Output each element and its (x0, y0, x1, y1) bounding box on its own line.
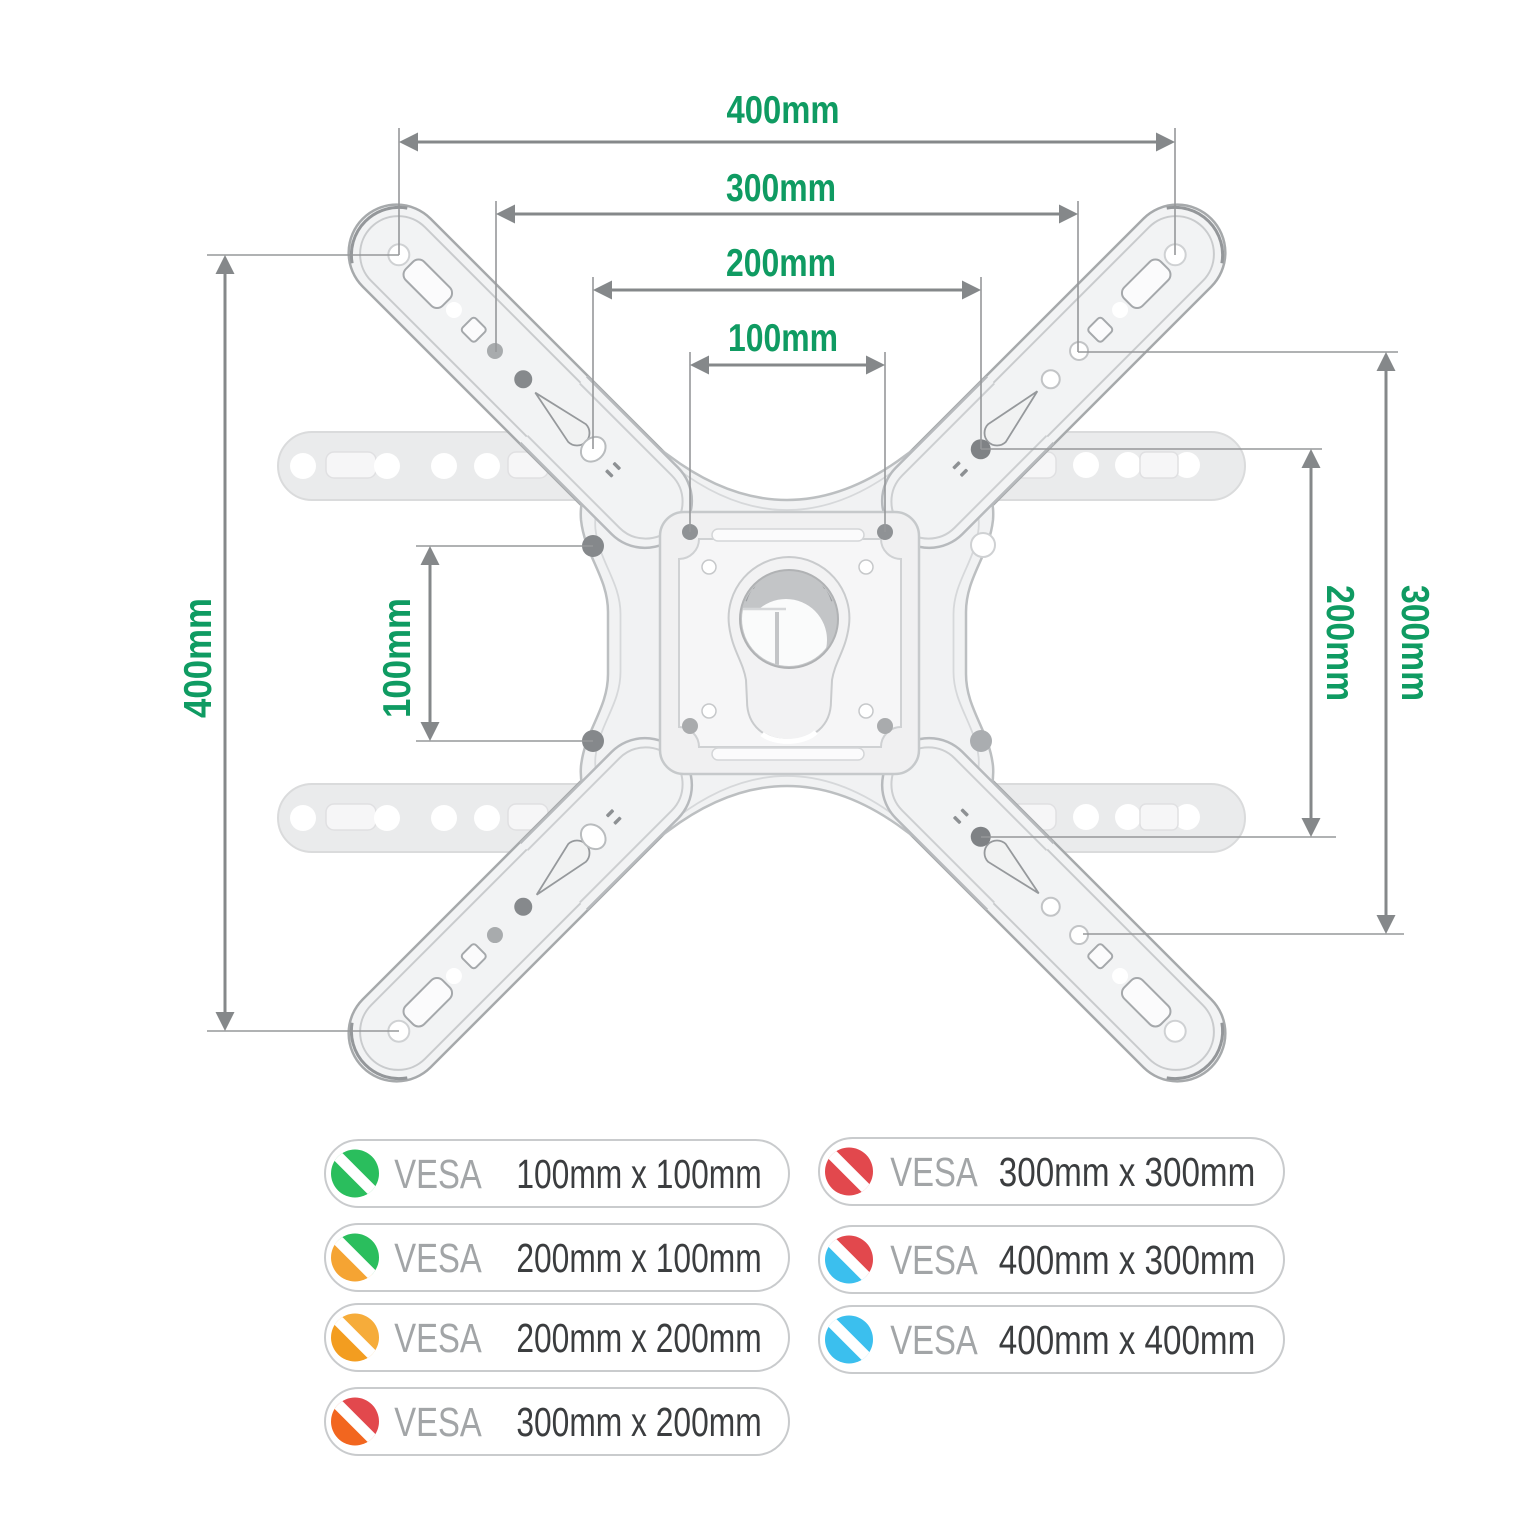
svg-text:100mm: 100mm (376, 598, 419, 718)
svg-text:200mm x 100mm: 200mm x 100mm (516, 1235, 761, 1281)
svg-text:400mm x 300mm: 400mm x 300mm (999, 1237, 1255, 1283)
svg-text:300mm x 300mm: 300mm x 300mm (999, 1149, 1255, 1195)
svg-text:300mm x 200mm: 300mm x 200mm (516, 1399, 761, 1445)
svg-text:100mm x 100mm: 100mm x 100mm (516, 1151, 761, 1197)
svg-text:300mm: 300mm (726, 167, 836, 210)
svg-text:400mm: 400mm (177, 598, 220, 718)
svg-text:VESA: VESA (890, 1316, 978, 1362)
svg-text:300mm: 300mm (1393, 585, 1436, 701)
svg-text:400mm: 400mm (727, 89, 840, 132)
svg-text:400mm x 400mm: 400mm x 400mm (999, 1317, 1255, 1363)
svg-text:VESA: VESA (394, 1398, 482, 1444)
svg-text:VESA: VESA (890, 1236, 978, 1282)
svg-text:100mm: 100mm (728, 317, 838, 360)
svg-text:VESA: VESA (394, 1234, 482, 1280)
svg-text:VESA: VESA (394, 1150, 482, 1196)
svg-text:200mm x 200mm: 200mm x 200mm (516, 1315, 761, 1361)
svg-text:200mm: 200mm (1318, 585, 1361, 701)
svg-text:VESA: VESA (890, 1148, 978, 1194)
svg-text:200mm: 200mm (726, 242, 836, 285)
svg-text:VESA: VESA (394, 1314, 482, 1360)
